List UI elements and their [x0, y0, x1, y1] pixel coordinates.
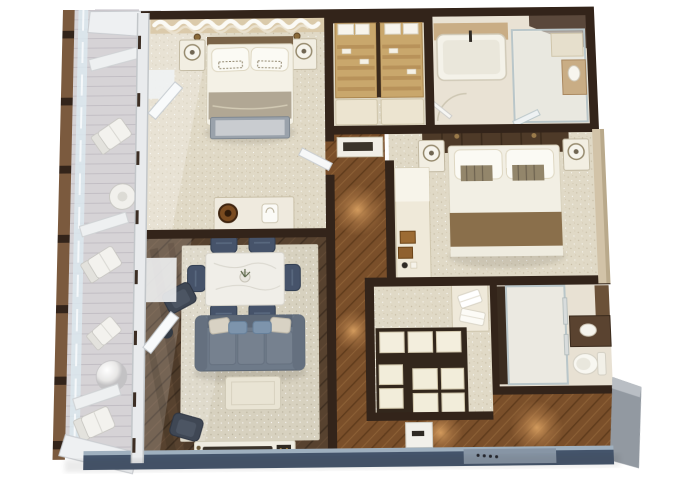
sofa-arm — [292, 315, 304, 370]
tub-faucet — [469, 31, 472, 42]
credenza-niche — [343, 142, 373, 151]
throw-pillow — [253, 321, 271, 333]
foot-bench-cushion — [215, 120, 284, 136]
drawer-bank-upper — [380, 331, 462, 352]
pillow — [251, 47, 289, 71]
console-slot — [412, 431, 424, 436]
nightstand — [291, 39, 317, 70]
minibar-cabinet — [395, 168, 429, 202]
wall-sconce — [194, 34, 200, 40]
bench-cushion — [336, 99, 378, 125]
dressing-west-wall — [365, 287, 376, 413]
walk-in-shower — [506, 286, 568, 385]
throw-pillow — [270, 317, 292, 333]
plan-3d-wrapper — [0, 4, 680, 486]
drawer-bank-lower — [379, 364, 465, 414]
vanity-sink — [568, 66, 580, 81]
foyer — [406, 422, 433, 447]
towel-bar — [564, 334, 569, 354]
seat-cushion — [209, 332, 236, 365]
shower-bench — [551, 33, 583, 56]
throw-pillow — [229, 321, 247, 333]
seat-cushion — [266, 331, 292, 364]
serving-tray — [400, 231, 415, 243]
dining-chair — [282, 264, 300, 290]
bath2-south-wall — [493, 385, 616, 395]
sofa — [195, 315, 305, 371]
foot-throw — [450, 212, 563, 247]
toilet — [573, 352, 606, 375]
seat-cushion — [238, 331, 264, 364]
balcony-door-threshold — [146, 258, 177, 303]
bath2-counter — [594, 285, 609, 315]
serving-tray — [398, 247, 412, 258]
wall-sconce — [294, 33, 300, 39]
pillow-runner — [512, 165, 544, 181]
floorplan-render — [0, 0, 680, 486]
ice-bucket — [262, 204, 278, 223]
nightstand — [563, 139, 590, 171]
bed-throw — [209, 92, 292, 120]
towel-bar — [563, 298, 568, 324]
bench-cushion — [381, 99, 424, 125]
vanity-sink — [580, 324, 597, 336]
cup — [411, 262, 417, 268]
nightstand — [179, 40, 205, 71]
pillow-runner — [461, 165, 493, 181]
bathtub-basin — [443, 40, 501, 75]
pillow — [211, 47, 249, 72]
nightstand — [418, 140, 444, 172]
bed-foot — [451, 246, 564, 257]
throw-pillow — [209, 317, 231, 334]
floorplan-svg — [0, 4, 680, 486]
bathroom-2 — [496, 285, 613, 384]
dressing-south-wall — [367, 411, 494, 421]
sofa-arm — [195, 316, 208, 371]
